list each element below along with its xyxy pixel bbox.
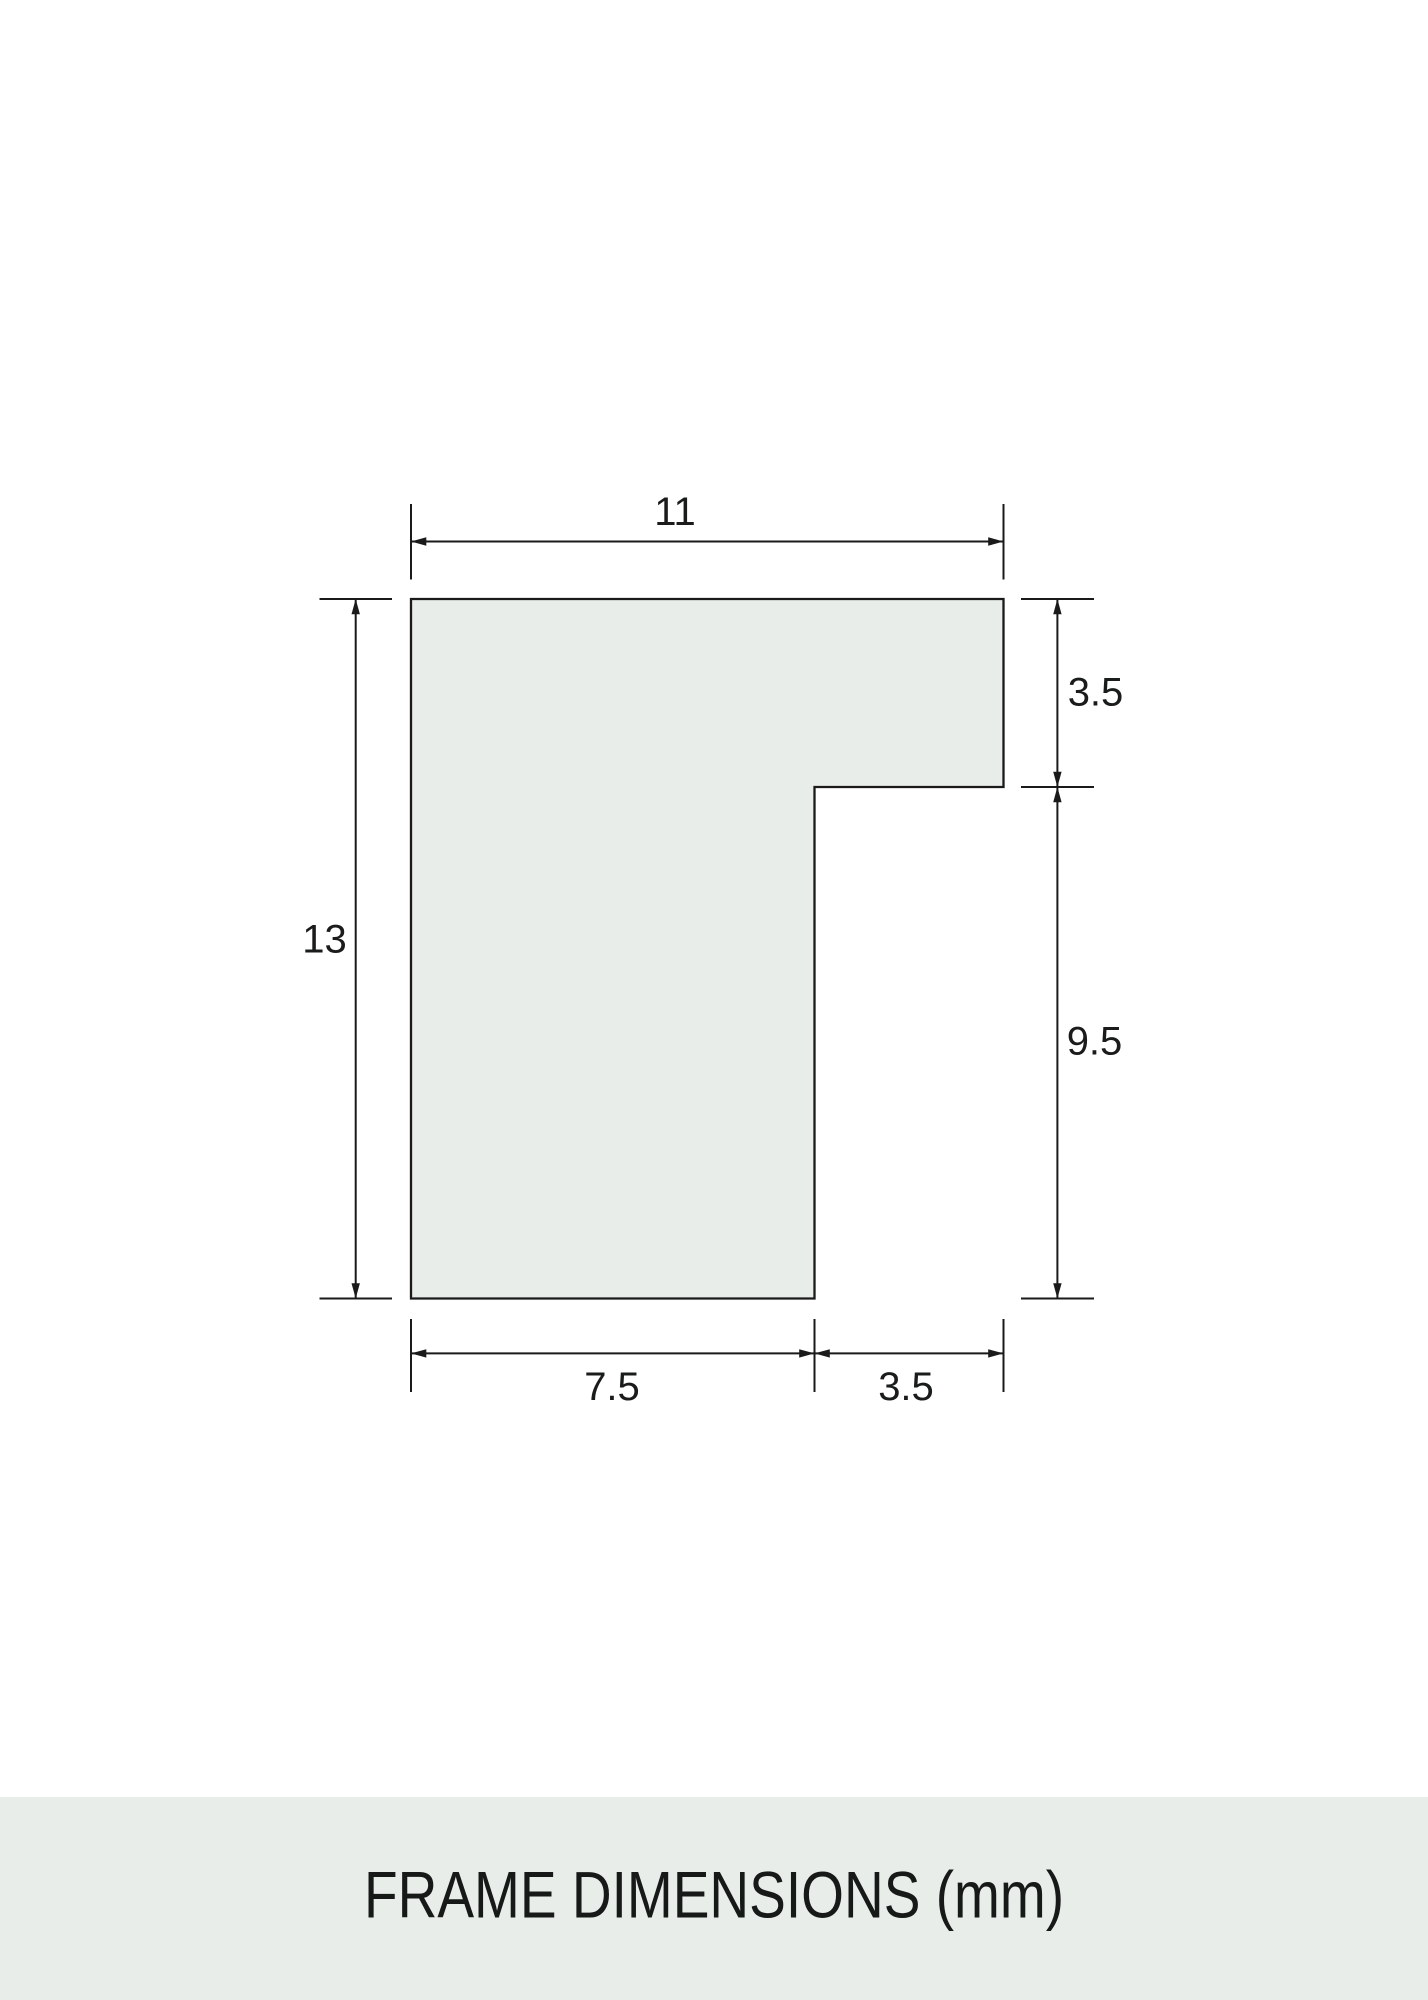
svg-text:11: 11 [654,490,696,534]
svg-text:FRAME DIMENSIONS (mm): FRAME DIMENSIONS (mm) [364,1858,1064,1932]
svg-text:3.5: 3.5 [878,1365,934,1409]
svg-text:7.5: 7.5 [584,1365,640,1409]
svg-text:9.5: 9.5 [1067,1020,1123,1064]
svg-text:13: 13 [302,918,347,962]
svg-text:3.5: 3.5 [1068,671,1124,715]
